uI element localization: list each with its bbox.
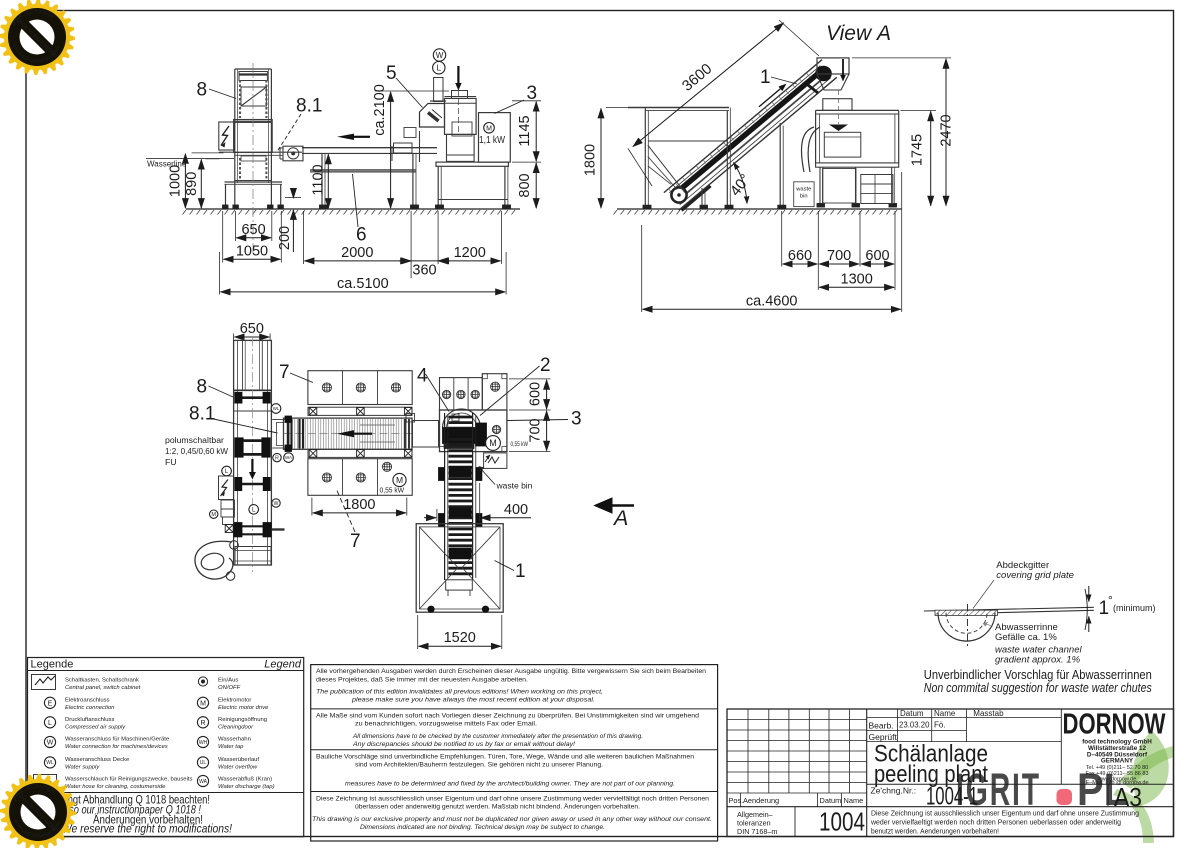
- svg-text:All dimensions have to be chec: All dimensions have to be checked by the…: [352, 733, 643, 740]
- svg-text:weder vervielfaeltigt werden n: weder vervielfaeltigt werden noch dritte…: [870, 818, 1121, 827]
- svg-text:ON/OFF: ON/OFF: [218, 685, 241, 691]
- svg-text:polumschaltbar: polumschaltbar: [165, 435, 224, 445]
- svg-text:Central panel, switch cabinet: Central panel, switch cabinet: [65, 685, 141, 691]
- svg-text:Name: Name: [934, 709, 956, 718]
- svg-text:800: 800: [517, 173, 533, 197]
- svg-text:(minimum): (minimum): [1113, 603, 1156, 613]
- svg-text:dieses Projektes, daß Sie imme: dieses Projektes, daß Sie immer mit der …: [316, 677, 528, 684]
- svg-text:Unverbindlicher Vorschlag für: Unverbindlicher Vorschlag für Abwasserri…: [924, 668, 1152, 682]
- svg-text:Cleaningdoor: Cleaningdoor: [218, 724, 254, 730]
- svg-text:650: 650: [241, 222, 265, 238]
- svg-text:Fö.: Fö.: [934, 721, 946, 730]
- svg-text:Diese Zeichnung ist ausschlies: Diese Zeichnung ist ausschliesslich unse…: [316, 796, 709, 803]
- svg-text:ca.4600: ca.4600: [746, 293, 798, 309]
- svg-text:überlassen oder anderweitig ge: überlassen oder anderweitig genutzt werd…: [355, 803, 640, 811]
- svg-text:Compressed air supply: Compressed air supply: [65, 724, 126, 730]
- svg-text:W: W: [436, 51, 444, 60]
- svg-text:1,1 kW: 1,1 kW: [479, 135, 505, 146]
- svg-text:The publication of this editio: The publication of this edition invalida…: [316, 689, 603, 696]
- svg-text:Aenderung: Aenderung: [743, 796, 779, 805]
- svg-text:Electric motor drive: Electric motor drive: [218, 705, 269, 711]
- svg-text:Water hose for cleaning, costu: Water hose for cleaning, costumerside: [65, 784, 166, 790]
- svg-text:Gefälle ca. 1%: Gefälle ca. 1%: [995, 632, 1057, 643]
- svg-text:A: A: [612, 506, 628, 530]
- svg-text:Wasserabfluß (Kran): Wasserabfluß (Kran): [218, 777, 272, 783]
- svg-text:Alle Maße sind vom Kunden sofo: Alle Maße sind vom Kunden sofort nach Vo…: [316, 713, 699, 720]
- svg-text:8.1: 8.1: [296, 96, 322, 117]
- svg-text:8.1: 8.1: [189, 403, 215, 424]
- svg-text:L: L: [437, 64, 442, 73]
- svg-text:We reserve the right to modifi: We reserve the right to modifications!: [62, 822, 233, 836]
- svg-text:Schaltkasten, Schaltschrank: Schaltkasten, Schaltschrank: [65, 678, 139, 684]
- svg-text:1004: 1004: [819, 809, 865, 837]
- svg-text:Wasseranschluss Decke: Wasseranschluss Decke: [65, 757, 130, 763]
- svg-text:Pos.: Pos.: [729, 796, 744, 805]
- svg-text:M: M: [200, 700, 206, 707]
- svg-text:Bauliche Vorschläge sind unver: Bauliche Vorschläge sind unverbindliche …: [316, 754, 694, 761]
- svg-text:8: 8: [197, 80, 208, 101]
- svg-text:Datum: Datum: [900, 709, 924, 718]
- svg-text:Water connection for machines/: Water connection for machines/devices: [65, 744, 168, 750]
- svg-text:5: 5: [386, 63, 397, 84]
- svg-text:0,55 kW: 0,55 kW: [380, 486, 405, 495]
- svg-text:7: 7: [350, 531, 361, 552]
- svg-text:bin: bin: [800, 194, 808, 200]
- svg-text:please make sure you have alwa: please make sure you have always the mos…: [351, 697, 595, 704]
- svg-text:3: 3: [571, 408, 582, 429]
- svg-text:1300: 1300: [841, 271, 873, 287]
- svg-text:M: M: [486, 125, 492, 132]
- svg-text:8: 8: [197, 377, 208, 398]
- svg-text:1520: 1520: [444, 630, 476, 646]
- svg-text:ca.2100: ca.2100: [372, 84, 388, 136]
- svg-text:1:2, 0,45/0,60 kW: 1:2, 0,45/0,60 kW: [165, 446, 229, 456]
- svg-text:700: 700: [827, 248, 851, 264]
- svg-text:measures have to be determined: measures have to be determined and fixed…: [345, 781, 675, 788]
- svg-text:Water supply: Water supply: [65, 764, 100, 770]
- svg-text:Ein/Aus: Ein/Aus: [218, 678, 238, 684]
- svg-text:W: W: [274, 501, 279, 507]
- svg-text:FU: FU: [165, 457, 177, 467]
- svg-text:Water overflow: Water overflow: [218, 764, 258, 770]
- svg-text:PL: PL: [1077, 764, 1128, 815]
- svg-text:Alle vorhergehenden Ausgaben w: Alle vorhergehenden Ausgaben werden durc…: [316, 668, 706, 675]
- svg-text:L: L: [48, 720, 52, 727]
- svg-text:890: 890: [184, 172, 200, 196]
- svg-text:Legende: Legende: [31, 659, 74, 671]
- svg-text:WA: WA: [199, 779, 208, 785]
- svg-text:1050: 1050: [236, 243, 268, 259]
- svg-text:23.03.20: 23.03.20: [899, 721, 930, 730]
- svg-text:gradient approx. 1%: gradient approx. 1%: [995, 655, 1081, 666]
- svg-text:Non commital suggestion for wa: Non commital suggestion for waste water …: [924, 681, 1152, 695]
- svg-text:40°: 40°: [727, 171, 754, 199]
- svg-text:1745: 1745: [910, 134, 926, 166]
- svg-text:360: 360: [412, 263, 436, 279]
- svg-text:1000: 1000: [168, 165, 184, 197]
- svg-text:E: E: [48, 700, 53, 707]
- svg-text:View: View: [826, 22, 873, 45]
- svg-text:Bearb.: Bearb.: [869, 721, 894, 731]
- svg-text:1800: 1800: [343, 497, 375, 513]
- svg-text:3600: 3600: [679, 60, 715, 94]
- svg-text:waste: waste: [795, 187, 811, 193]
- svg-text:Any discrepancies should be no: Any discrepancies should be notified to …: [352, 741, 575, 748]
- svg-text:700: 700: [528, 418, 544, 442]
- svg-text:IGRIT: IGRIT: [956, 764, 1041, 814]
- svg-text:DORNOW: DORNOW: [1063, 709, 1166, 741]
- svg-text:sind vom Architekten/Bauherrn: sind vom Architekten/Bauherrn festzulege…: [355, 762, 603, 769]
- svg-text:Wasseranschluss für Maschinen/: Wasseranschluss für Maschinen/Geräte: [65, 737, 170, 743]
- svg-text:Datum: Datum: [820, 796, 842, 805]
- svg-text:7: 7: [279, 362, 290, 383]
- svg-text:Wasserhahn: Wasserhahn: [218, 737, 251, 743]
- svg-text:waste bin: waste bin: [496, 481, 533, 491]
- svg-text:Reinigungsöffnung: Reinigungsöffnung: [218, 717, 267, 723]
- svg-text:2000: 2000: [341, 245, 373, 261]
- svg-text:2: 2: [540, 355, 551, 376]
- svg-text:Druckluftanschluss: Druckluftanschluss: [65, 717, 114, 723]
- svg-text:UL: UL: [200, 760, 207, 766]
- svg-text:Elektromotor: Elektromotor: [218, 698, 251, 704]
- svg-text:660: 660: [788, 248, 812, 264]
- svg-text:M: M: [396, 475, 403, 485]
- svg-text:Masstab: Masstab: [973, 709, 1004, 718]
- svg-text:600: 600: [865, 248, 889, 264]
- svg-text:1145: 1145: [517, 115, 533, 146]
- svg-text:benutzt werden. Aenderungen vo: benutzt werden. Aenderungen vorbehalten!: [871, 827, 999, 836]
- svg-text:R: R: [275, 455, 279, 461]
- svg-text:Ze'chng.Nr.:: Ze'chng.Nr.:: [871, 786, 917, 796]
- svg-text:Elektroanschluss: Elektroanschluss: [65, 698, 110, 704]
- svg-text:Water discharge (tap): Water discharge (tap): [218, 784, 275, 790]
- svg-text:Name: Name: [844, 796, 864, 805]
- svg-text:200: 200: [277, 226, 293, 250]
- svg-text:400: 400: [504, 502, 528, 518]
- svg-text:1800: 1800: [583, 144, 599, 176]
- svg-text:WH: WH: [199, 740, 208, 746]
- svg-text:600: 600: [528, 382, 544, 406]
- svg-text:R: R: [200, 720, 205, 727]
- svg-text:WA: WA: [285, 455, 292, 460]
- svg-text:This drawing is our exclusive: This drawing is our exclusive property a…: [312, 816, 712, 823]
- svg-text:Electric connection: Electric connection: [65, 705, 115, 711]
- svg-text:WL: WL: [46, 760, 54, 766]
- svg-text:Legend: Legend: [264, 659, 302, 671]
- svg-text:1200: 1200: [454, 245, 486, 261]
- svg-text:W: W: [47, 740, 54, 747]
- svg-text:DIN 7168–m: DIN 7168–m: [737, 827, 777, 836]
- svg-text:0,55 kW: 0,55 kW: [511, 441, 529, 448]
- svg-text:Wasserschlauch für Reinigungsz: Wasserschlauch für Reinigungszwecke, bau…: [65, 777, 193, 783]
- svg-text:1100: 1100: [311, 164, 327, 195]
- svg-text:M: M: [489, 438, 497, 448]
- svg-text:A: A: [875, 22, 891, 45]
- svg-text:1: 1: [515, 561, 526, 582]
- svg-text:Dimensions indicated are not b: Dimensions indicated are not binding. Te…: [360, 824, 605, 831]
- svg-text:ca.5100: ca.5100: [337, 276, 389, 292]
- svg-text:Water tap: Water tap: [218, 744, 244, 750]
- svg-text:M: M: [211, 512, 216, 518]
- svg-text:6: 6: [356, 225, 367, 246]
- svg-text:2470: 2470: [939, 114, 955, 146]
- svg-text:Wasserüberlauf: Wasserüberlauf: [218, 757, 259, 763]
- svg-text:1: 1: [760, 67, 771, 88]
- svg-text:WL: WL: [273, 406, 280, 411]
- svg-text:zu benachrichtigen, vorzugswei: zu benachrichtigen, vorzugsweise mittels…: [355, 721, 537, 728]
- svg-text:650: 650: [240, 321, 264, 337]
- svg-text:covering grid plate: covering grid plate: [996, 570, 1074, 581]
